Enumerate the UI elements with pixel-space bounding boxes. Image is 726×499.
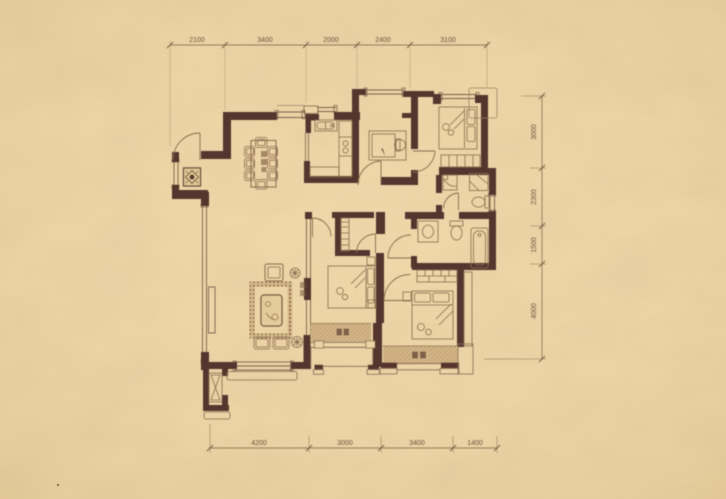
svg-text:2300: 2300 xyxy=(531,189,538,205)
svg-text:3100: 3100 xyxy=(440,37,456,44)
svg-text:3000: 3000 xyxy=(531,124,538,140)
svg-text:1500: 1500 xyxy=(531,237,538,253)
svg-text:3400: 3400 xyxy=(257,37,273,44)
svg-text:2400: 2400 xyxy=(375,37,391,44)
svg-text:2000: 2000 xyxy=(323,37,339,44)
svg-text:4200: 4200 xyxy=(251,440,267,447)
svg-text:3000: 3000 xyxy=(337,440,353,447)
svg-text:3400: 3400 xyxy=(409,440,425,447)
svg-text:2100: 2100 xyxy=(189,37,205,44)
svg-text:4000: 4000 xyxy=(531,303,538,319)
svg-text:1400: 1400 xyxy=(467,440,483,447)
